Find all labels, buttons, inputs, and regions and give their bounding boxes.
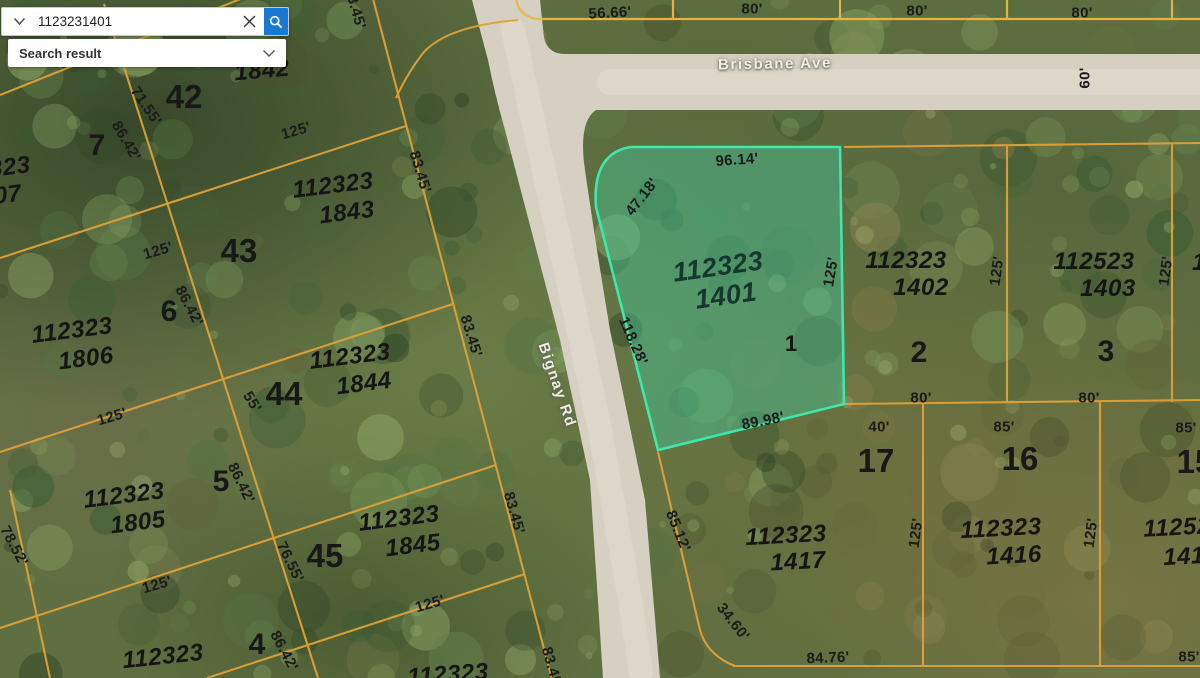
parcel-boundary-lines bbox=[0, 0, 553, 678]
chevron-down-icon[interactable] bbox=[2, 17, 36, 26]
map-viewport[interactable]: Brisbane AveBignay Rd56.66'80'80'80'60'8… bbox=[0, 0, 1200, 678]
selected-parcel-highlight[interactable] bbox=[596, 147, 844, 450]
search-icon bbox=[269, 15, 283, 29]
search-result-label: Search result bbox=[8, 46, 252, 61]
search-bar bbox=[1, 7, 289, 36]
search-result-dropdown[interactable]: Search result bbox=[8, 39, 286, 67]
search-input[interactable] bbox=[36, 14, 234, 29]
close-icon[interactable] bbox=[234, 15, 264, 28]
search-button[interactable] bbox=[264, 8, 288, 35]
aerial-map bbox=[0, 0, 1200, 678]
chevron-down-icon[interactable] bbox=[252, 49, 286, 58]
